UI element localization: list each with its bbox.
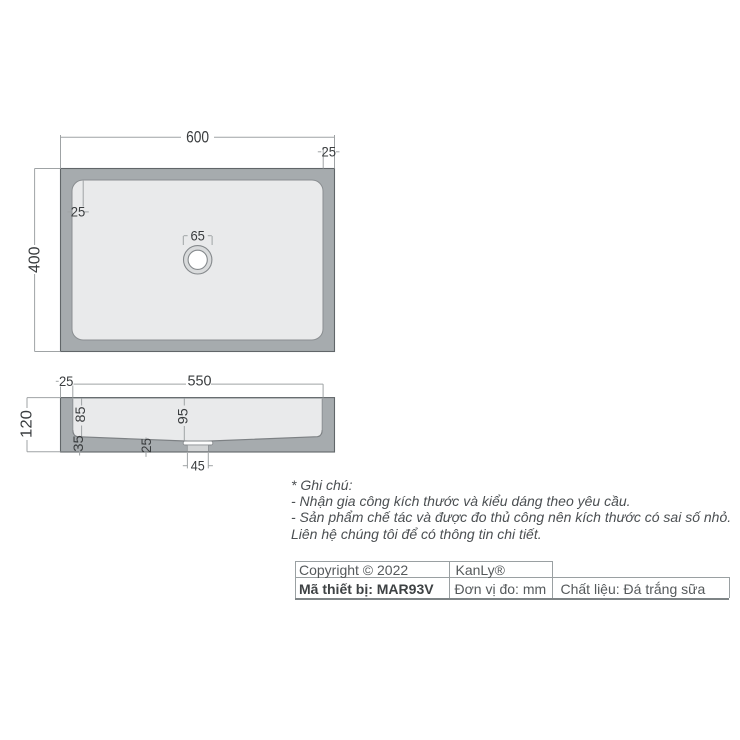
svg-text:25: 25 [71, 204, 86, 220]
svg-text:85: 85 [72, 406, 88, 422]
svg-text:25: 25 [59, 373, 74, 389]
svg-text:600: 600 [186, 127, 209, 146]
svg-text:550: 550 [188, 372, 212, 389]
svg-text:400: 400 [27, 246, 44, 273]
svg-text:25: 25 [138, 438, 154, 453]
svg-text:45: 45 [191, 458, 205, 474]
svg-text:25: 25 [322, 144, 337, 160]
svg-text:65: 65 [190, 227, 205, 243]
svg-text:95: 95 [175, 408, 191, 424]
svg-text:120: 120 [19, 410, 36, 438]
svg-text:35: 35 [70, 435, 86, 452]
